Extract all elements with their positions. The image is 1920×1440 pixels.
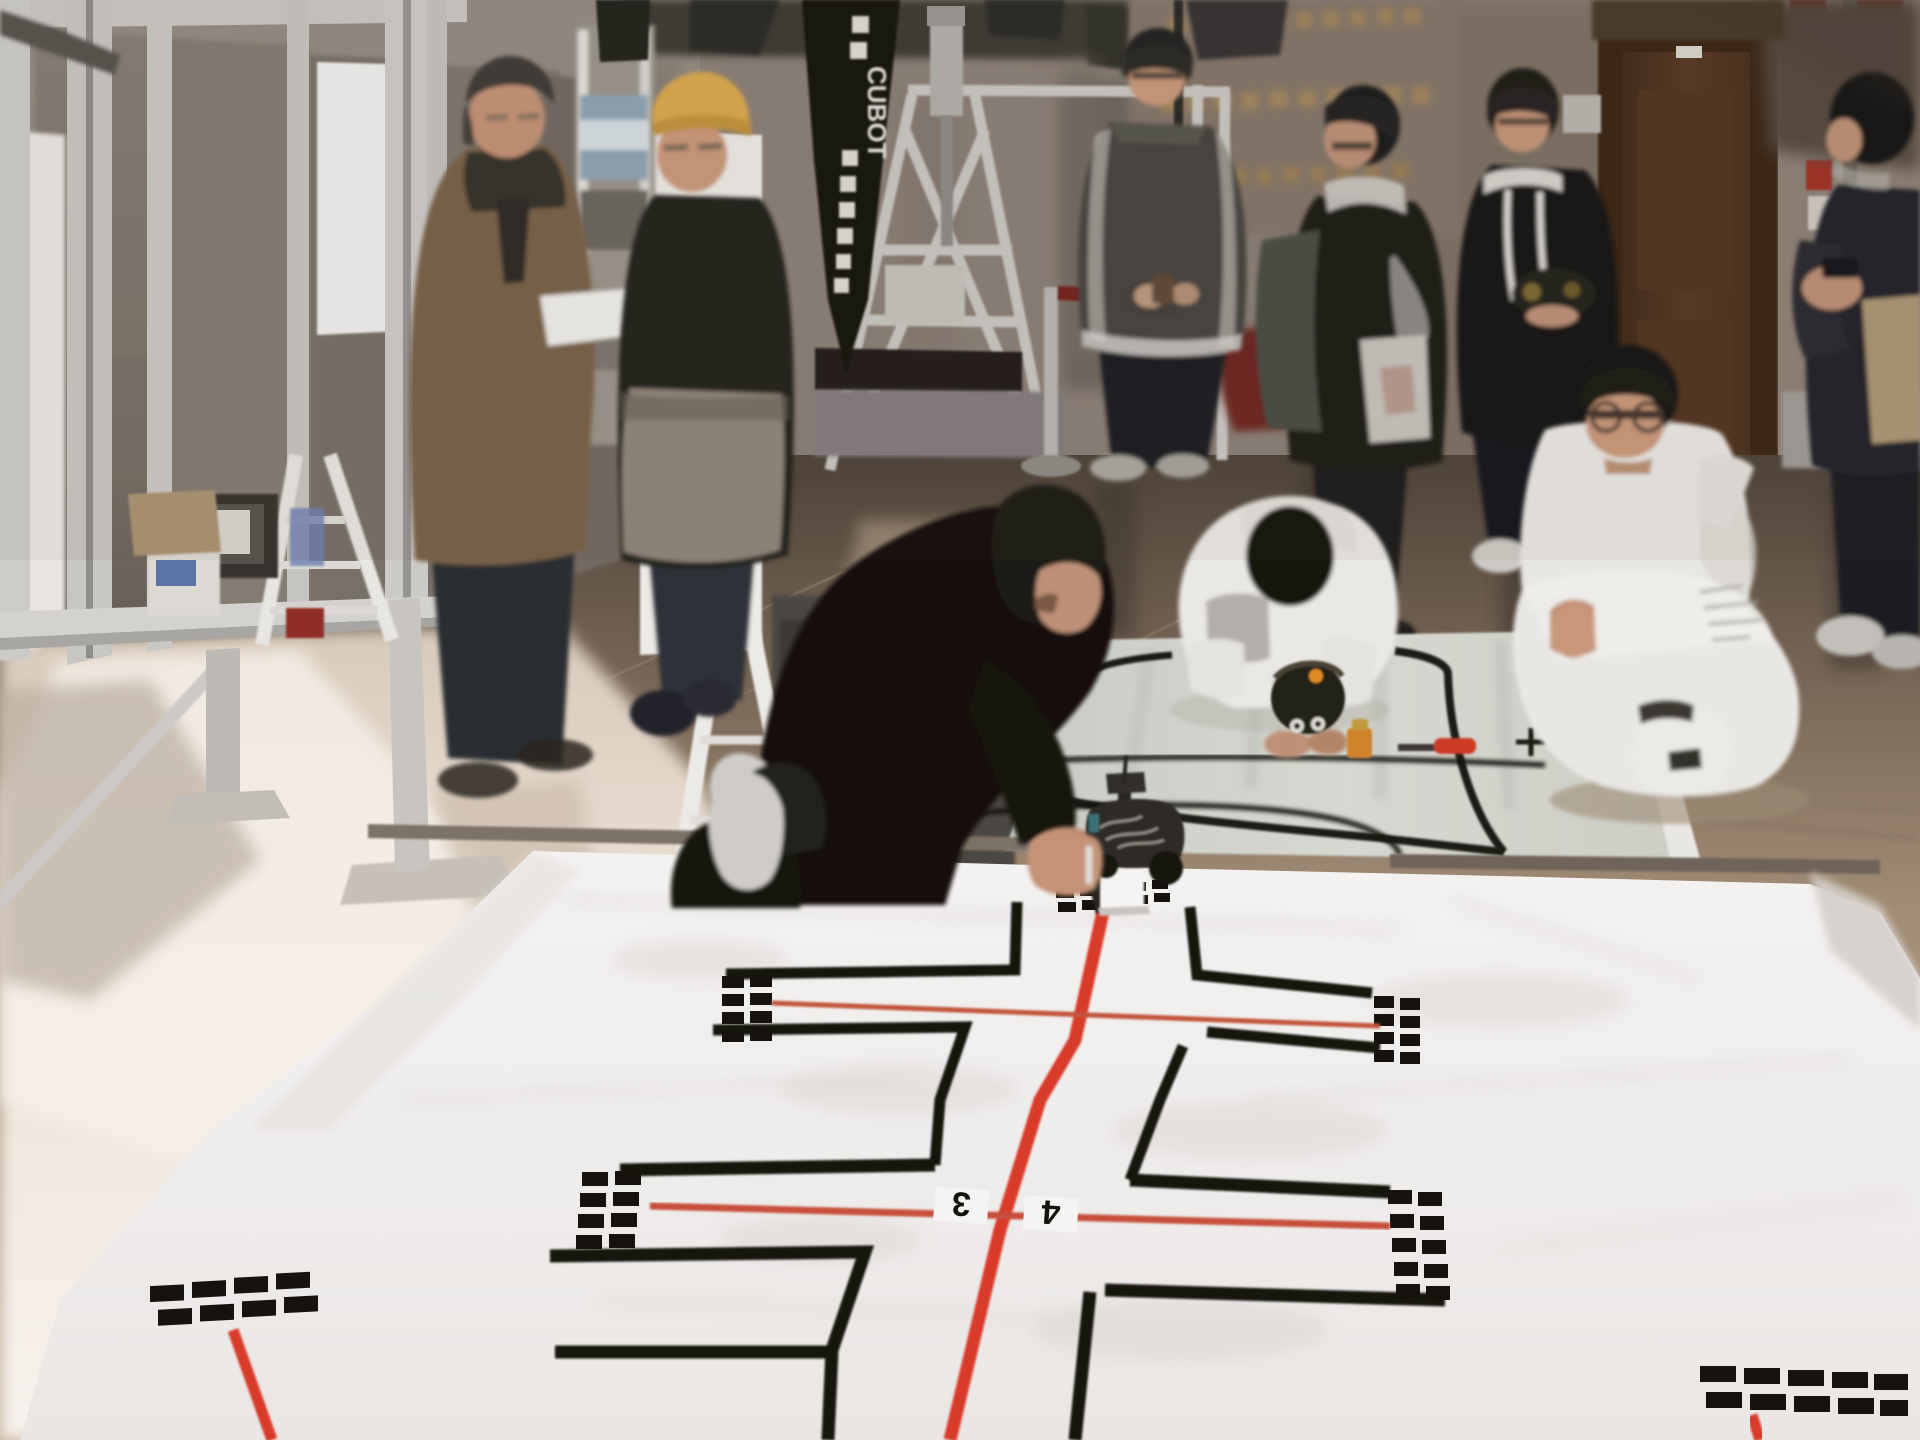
svg-text:3: 3	[951, 1184, 973, 1223]
svg-text:4: 4	[1040, 1192, 1062, 1231]
